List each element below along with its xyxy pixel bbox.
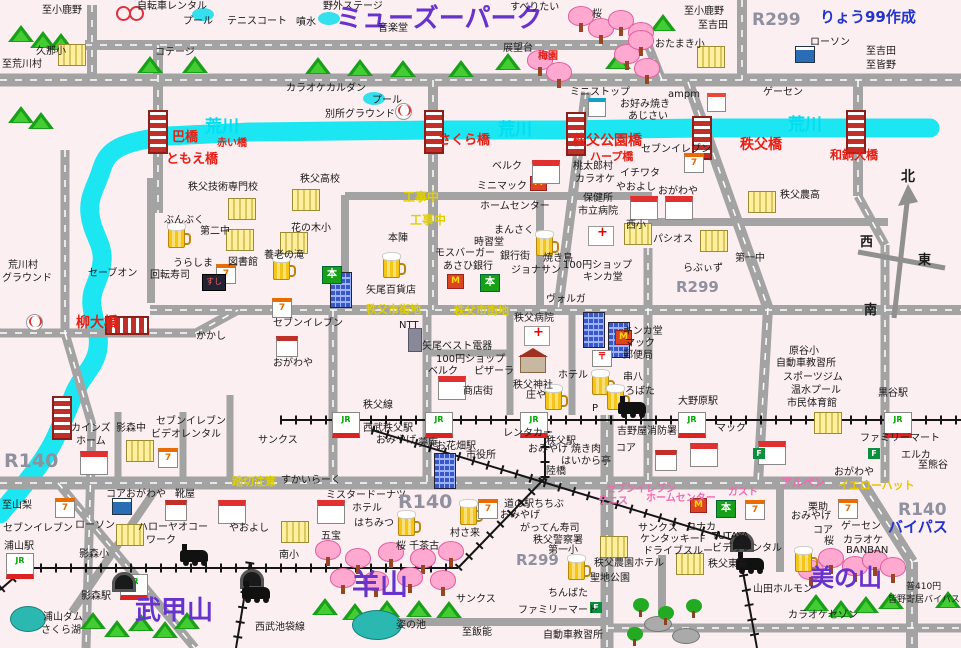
compass-north-label: 北 [901, 170, 915, 185]
map-credit: りょう99作成 [820, 10, 916, 26]
river-arakawa [0, 128, 930, 514]
compass-south-label: 南 [864, 304, 877, 318]
map-base-layer [0, 0, 961, 648]
map-canvas: JRJRJRJRJRJRJR77777777MMMM本本本すし〒FFF 至小鹿野… [0, 0, 961, 648]
compass-west-label: 西 [860, 236, 873, 250]
road [758, 308, 768, 483]
road-centerline [58, 483, 195, 648]
railway-line [236, 562, 250, 648]
compass-cross-line [894, 194, 908, 318]
compass-arrow-icon [898, 184, 918, 206]
compass-east-label: 東 [918, 254, 931, 268]
